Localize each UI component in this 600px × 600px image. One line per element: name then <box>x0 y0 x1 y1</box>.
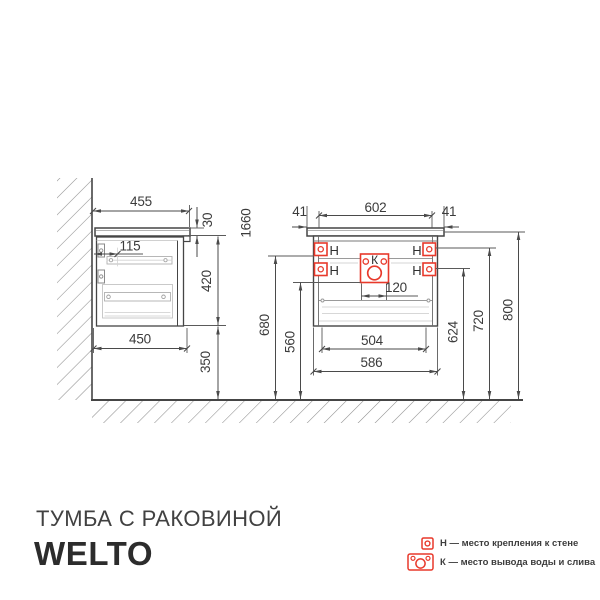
branding-block: ТУМБА С РАКОВИНОЙ WELTO <box>36 506 282 573</box>
dim-label-624: 624 <box>446 320 461 343</box>
legend: Н — место крепления к стене К — место вы… <box>404 537 595 574</box>
dim-label-41-right: 41 <box>442 204 457 219</box>
wall-hatch <box>57 178 92 400</box>
front-countertop <box>307 228 444 236</box>
mount-marker-label: Н <box>412 243 421 258</box>
front-view-dim-labels: 41 602 41 120 680 560 624 720 800 504 58… <box>257 200 516 370</box>
mount-marker-icon <box>315 243 328 256</box>
drain-marker-label: К <box>371 253 378 267</box>
dim-label-30: 30 <box>200 213 215 228</box>
mount-marker-label: Н <box>330 263 339 278</box>
dim-label-800: 800 <box>501 299 516 321</box>
dim-label-602: 602 <box>365 200 387 215</box>
dim-label-455: 455 <box>130 194 152 209</box>
dim-label-720: 720 <box>471 310 486 332</box>
dim-label-450: 450 <box>129 332 151 347</box>
dim-label-504: 504 <box>361 333 384 348</box>
mount-marker-icon <box>315 263 328 276</box>
mount-marker-icon <box>421 537 434 550</box>
drain-marker-icon <box>407 553 434 571</box>
dim-label-41-left: 41 <box>292 204 307 219</box>
drawing-canvas: 455 30 1660 115 420 450 350 <box>0 0 600 480</box>
dim-label-115: 115 <box>120 239 141 254</box>
dim-label-1660: 1660 <box>239 208 254 237</box>
drain-marker-icon: К <box>361 253 389 283</box>
mount-marker-label: Н <box>412 263 421 278</box>
dim-label-120: 120 <box>385 280 407 295</box>
legend-mount-row: Н — место крепления к стене <box>404 537 595 550</box>
legend-drain-row: К — место вывода воды и слива <box>404 553 595 571</box>
product-title: ТУМБА С РАКОВИНОЙ <box>36 506 282 532</box>
dim-label-420: 420 <box>199 270 214 292</box>
side-countertop <box>95 228 190 236</box>
mount-marker-icon <box>423 243 436 256</box>
floor-hatch <box>92 401 511 423</box>
dim-label-680: 680 <box>257 314 272 336</box>
mount-marker-label: Н <box>330 243 339 258</box>
brand-logo: WELTO <box>34 535 282 573</box>
mount-marker-icon <box>423 263 436 276</box>
technical-drawing-page: 455 30 1660 115 420 450 350 <box>0 0 600 600</box>
legend-drain-label: К — место вывода воды и слива <box>440 557 595 568</box>
dim-label-586: 586 <box>361 355 383 370</box>
legend-mount-label: Н — место крепления к стене <box>440 538 578 549</box>
dim-label-350: 350 <box>198 351 213 373</box>
side-view-drawing <box>95 228 190 326</box>
dim-label-560: 560 <box>283 331 298 353</box>
